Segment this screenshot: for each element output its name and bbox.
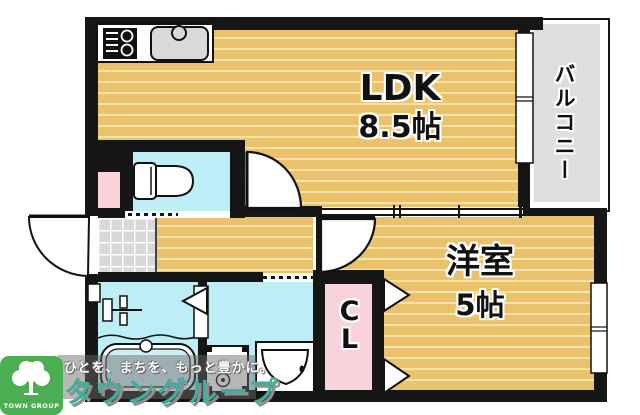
floor-plan: LDK 8.5帖 洋室 5帖 バルコニー CL ひとを、まちを、もっと豊かに。 … — [0, 0, 640, 415]
ldk-label: LDK — [330, 70, 470, 108]
tree-icon — [0, 356, 63, 401]
bath-edge-wave — [98, 335, 198, 339]
town-group-logo: TOWN GROUP — [0, 356, 63, 415]
bath-folding-door-icon — [183, 286, 208, 338]
balcony-label: バルコニー — [553, 38, 575, 208]
ldk-size-label: 8.5帖 — [330, 112, 470, 144]
closet-label: CL — [336, 298, 363, 355]
stove-icon — [103, 28, 137, 59]
ldk-door-arc — [247, 152, 301, 208]
bathroom-window — [88, 284, 100, 302]
toilet-icon — [134, 163, 193, 199]
balcony-window — [516, 33, 533, 163]
fixtures-layer — [0, 0, 640, 415]
watermark-brand: タウングループ — [64, 369, 279, 411]
western-room-door-arc — [320, 217, 375, 272]
kitchen-sink-icon — [151, 26, 208, 60]
western-room-window — [591, 283, 607, 373]
entry-door-arc — [29, 216, 98, 276]
shower-mixer-icon — [103, 296, 142, 325]
western-room-label: 洋室 — [400, 245, 560, 281]
town-group-logo-text: TOWN GROUP — [0, 402, 63, 410]
western-room-size-label: 5帖 — [400, 290, 560, 320]
kitchen-counter — [97, 24, 213, 62]
